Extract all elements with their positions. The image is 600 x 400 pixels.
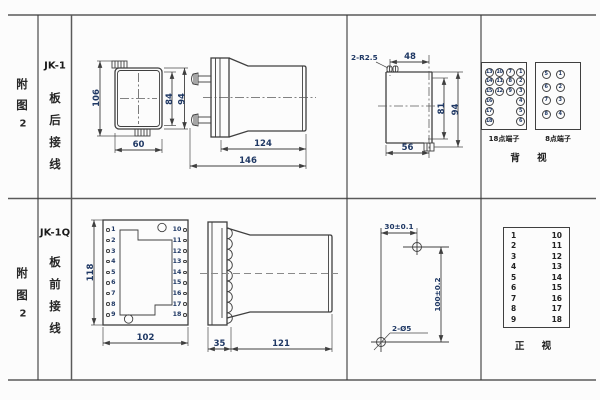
dim-35: 35 (214, 339, 226, 349)
terminal-dot-icon (106, 292, 110, 296)
table-terminal-7: 7 (511, 295, 516, 303)
terminal-dot-icon (183, 271, 187, 275)
front-terminal-10: 10 (173, 226, 187, 233)
terminal-circle-3: 3 (516, 87, 525, 96)
front-terminal-5: 5 (106, 269, 115, 276)
front-terminal-14: 14 (173, 269, 187, 276)
front-terminal-17: 17 (173, 301, 187, 308)
terminal-circle-8: 8 (506, 77, 515, 86)
terminal-dot-icon (183, 281, 187, 285)
front-terminal-3: 3 (106, 248, 115, 255)
terminal-number: 7 (111, 290, 115, 297)
terminal-number: 18 (173, 311, 182, 318)
front-terminal-11: 11 (173, 237, 187, 244)
terminal-circle-14: 14 (485, 77, 494, 86)
cutout-drawing: 48 2-R2.5 81 94 56 (351, 52, 463, 158)
terminal-dot-icon (183, 228, 187, 232)
terminal-circle-7: 7 (542, 96, 551, 105)
terminal-number: 14 (173, 269, 182, 276)
table-terminal-9: 9 (511, 316, 516, 324)
terminal-block-18-label: 18点端子 (477, 134, 531, 144)
terminal-dot-icon (106, 281, 110, 285)
terminal-number: 10 (173, 226, 182, 233)
front-terminal-7: 7 (106, 290, 115, 297)
side-view-front-drawing: 35 121 (200, 222, 338, 352)
model-label-jk1: JK-1 (44, 61, 66, 72)
dim-121: 121 (272, 339, 290, 349)
terminal-dot-icon (106, 228, 110, 232)
terminal-number: 6 (111, 279, 115, 286)
table-terminal-4: 4 (511, 263, 516, 271)
wiring-label-char: 后 (49, 112, 61, 128)
wiring-label-char: 板 (49, 254, 61, 270)
terminal-number: 11 (173, 237, 182, 244)
terminal-circle-15: 15 (485, 87, 494, 96)
figure-label-char: 2 (20, 119, 27, 130)
terminal-circle-4: 4 (556, 110, 565, 119)
fixing-tab-icon (387, 66, 398, 72)
terminal-circle-1: 1 (516, 68, 525, 77)
wiring-label-char: 接 (49, 298, 61, 314)
front-terminal-16: 16 (173, 290, 187, 297)
front-terminal-9: 9 (106, 311, 115, 318)
terminal-circle-17: 17 (485, 107, 494, 116)
dim-60: 60 (133, 140, 145, 150)
terminal-number: 4 (111, 258, 115, 265)
terminal-circle-5: 5 (542, 70, 551, 79)
terminal-dot-icon (183, 249, 187, 253)
terminal-number: 5 (111, 269, 115, 276)
callout-2-d5: 2-Ø5 (392, 324, 411, 333)
terminal-dot-icon (106, 271, 110, 275)
dim-30: 30±0.1 (384, 222, 413, 231)
terminal-dot-icon (183, 302, 187, 306)
terminal-circle-9: 9 (506, 87, 515, 96)
table-terminal-16: 16 (552, 295, 562, 303)
terminal-dot-icon (106, 239, 110, 243)
top-screw-icon (112, 61, 127, 68)
terminal-number: 8 (111, 301, 115, 308)
front-terminal-15: 15 (173, 279, 187, 286)
drill-plan-drawing: 30±0.1 100±0.2 2-Ø5 (371, 222, 449, 352)
figure-label-char: 图 (16, 287, 28, 303)
dim-84: 84 (165, 93, 175, 105)
terminal-block-8: 51627384 (535, 62, 581, 130)
terminal-dot-icon (106, 249, 110, 253)
terminal-circle-18: 18 (485, 117, 494, 126)
wiring-label-char: 线 (49, 156, 61, 172)
table-terminal-14: 14 (552, 274, 562, 282)
table-terminal-6: 6 (511, 284, 516, 292)
dim-124: 124 (254, 139, 272, 149)
terminal-circle-1: 1 (556, 70, 565, 79)
front-terminal-8: 8 (106, 301, 115, 308)
front-view-label: 正 视 (503, 338, 570, 352)
table-terminal-17: 17 (552, 305, 562, 313)
figure-label-char: 附 (16, 76, 28, 92)
terminal-circle-13: 13 (485, 68, 494, 77)
dim-100: 100±0.2 (433, 277, 442, 311)
table-terminal-3: 3 (511, 253, 516, 261)
terminal-number: 2 (111, 237, 115, 244)
terminal-number: 17 (173, 301, 182, 308)
wiring-label-char: 接 (49, 134, 61, 150)
terminal-circle-4: 4 (516, 97, 525, 106)
terminal-dot-icon (183, 239, 187, 243)
terminal-circle-2: 2 (516, 77, 525, 86)
terminal-circle-16: 16 (485, 97, 494, 106)
terminal-table: 123456789101112131415161718 (503, 227, 570, 328)
terminal-number: 15 (173, 279, 182, 286)
rear-view-drawing: 106 84 94 60 (92, 61, 188, 153)
table-terminal-10: 10 (552, 232, 562, 240)
side-view-rear-drawing: 124 146 (190, 58, 316, 169)
terminal-circle-6: 6 (542, 83, 551, 92)
terminal-block-18: 131071141182151293164175186 (481, 62, 527, 130)
model-label-jk1q: JK-1Q (40, 228, 70, 239)
table-terminal-5: 5 (511, 274, 516, 282)
dim-118: 118 (86, 264, 96, 282)
terminal-number: 9 (111, 311, 115, 318)
table-terminal-13: 13 (552, 263, 562, 271)
dim-106: 106 (92, 89, 102, 107)
manual-page: 106 84 94 60 (0, 0, 600, 400)
terminal-dot-icon (106, 302, 110, 306)
terminal-circle-8: 8 (542, 110, 551, 119)
wiring-label-char: 线 (49, 320, 61, 336)
figure-label-char: 2 (20, 309, 27, 320)
wiring-label-char: 前 (49, 276, 61, 292)
table-terminal-18: 18 (552, 316, 562, 324)
front-terminal-13: 13 (173, 258, 187, 265)
terminal-number: 16 (173, 290, 182, 297)
callout-2-r2p5: 2-R2.5 (351, 53, 378, 62)
terminal-circle-10: 10 (495, 68, 504, 77)
terminal-dot-icon (106, 260, 110, 264)
terminal-screw-icon (192, 73, 212, 85)
table-terminal-12: 12 (552, 253, 562, 261)
terminal-dot-icon (183, 292, 187, 296)
terminal-circle-11: 11 (495, 77, 504, 86)
front-terminal-18: 18 (173, 311, 187, 318)
back-view-label: 背 视 (482, 150, 582, 164)
terminal-circle-5: 5 (516, 107, 525, 116)
dim-56: 56 (402, 143, 414, 153)
terminal-circle-3: 3 (556, 96, 565, 105)
bottom-screw-icon (135, 129, 150, 136)
dim-146: 146 (239, 156, 257, 166)
table-terminal-2: 2 (511, 242, 516, 250)
terminal-circle-12: 12 (495, 87, 504, 96)
terminal-dot-icon (183, 260, 187, 264)
dim-94: 94 (178, 93, 188, 105)
front-terminal-6: 6 (106, 279, 115, 286)
dim-48: 48 (404, 52, 416, 62)
front-terminal-4: 4 (106, 258, 115, 265)
wiring-label-char: 板 (49, 90, 61, 106)
table-terminal-11: 11 (552, 242, 562, 250)
dim-102: 102 (137, 333, 155, 343)
front-terminal-12: 12 (173, 248, 187, 255)
table-terminal-15: 15 (552, 284, 562, 292)
front-terminal-2: 2 (106, 237, 115, 244)
terminal-block-8-label: 8点端子 (534, 134, 582, 144)
dim-94b: 94 (451, 104, 461, 116)
figure-label-char: 图 (16, 97, 28, 113)
terminal-number: 12 (173, 248, 182, 255)
terminal-circle-6: 6 (516, 117, 525, 126)
terminal-dot-icon (106, 313, 110, 317)
terminal-number: 1 (111, 226, 115, 233)
front-terminal-1: 1 (106, 226, 115, 233)
terminal-number: 13 (173, 258, 182, 265)
front-view-terminals: 123456789101112131415161718 (103, 220, 188, 325)
table-terminal-1: 1 (511, 232, 516, 240)
terminal-number: 3 (111, 248, 115, 255)
terminal-circle-7: 7 (506, 68, 515, 77)
terminal-circle-2: 2 (556, 83, 565, 92)
terminal-screw-icon (192, 114, 212, 126)
figure-label-char: 附 (16, 265, 28, 281)
terminal-dot-icon (183, 313, 187, 317)
table-terminal-8: 8 (511, 305, 516, 313)
dim-81: 81 (437, 103, 447, 115)
